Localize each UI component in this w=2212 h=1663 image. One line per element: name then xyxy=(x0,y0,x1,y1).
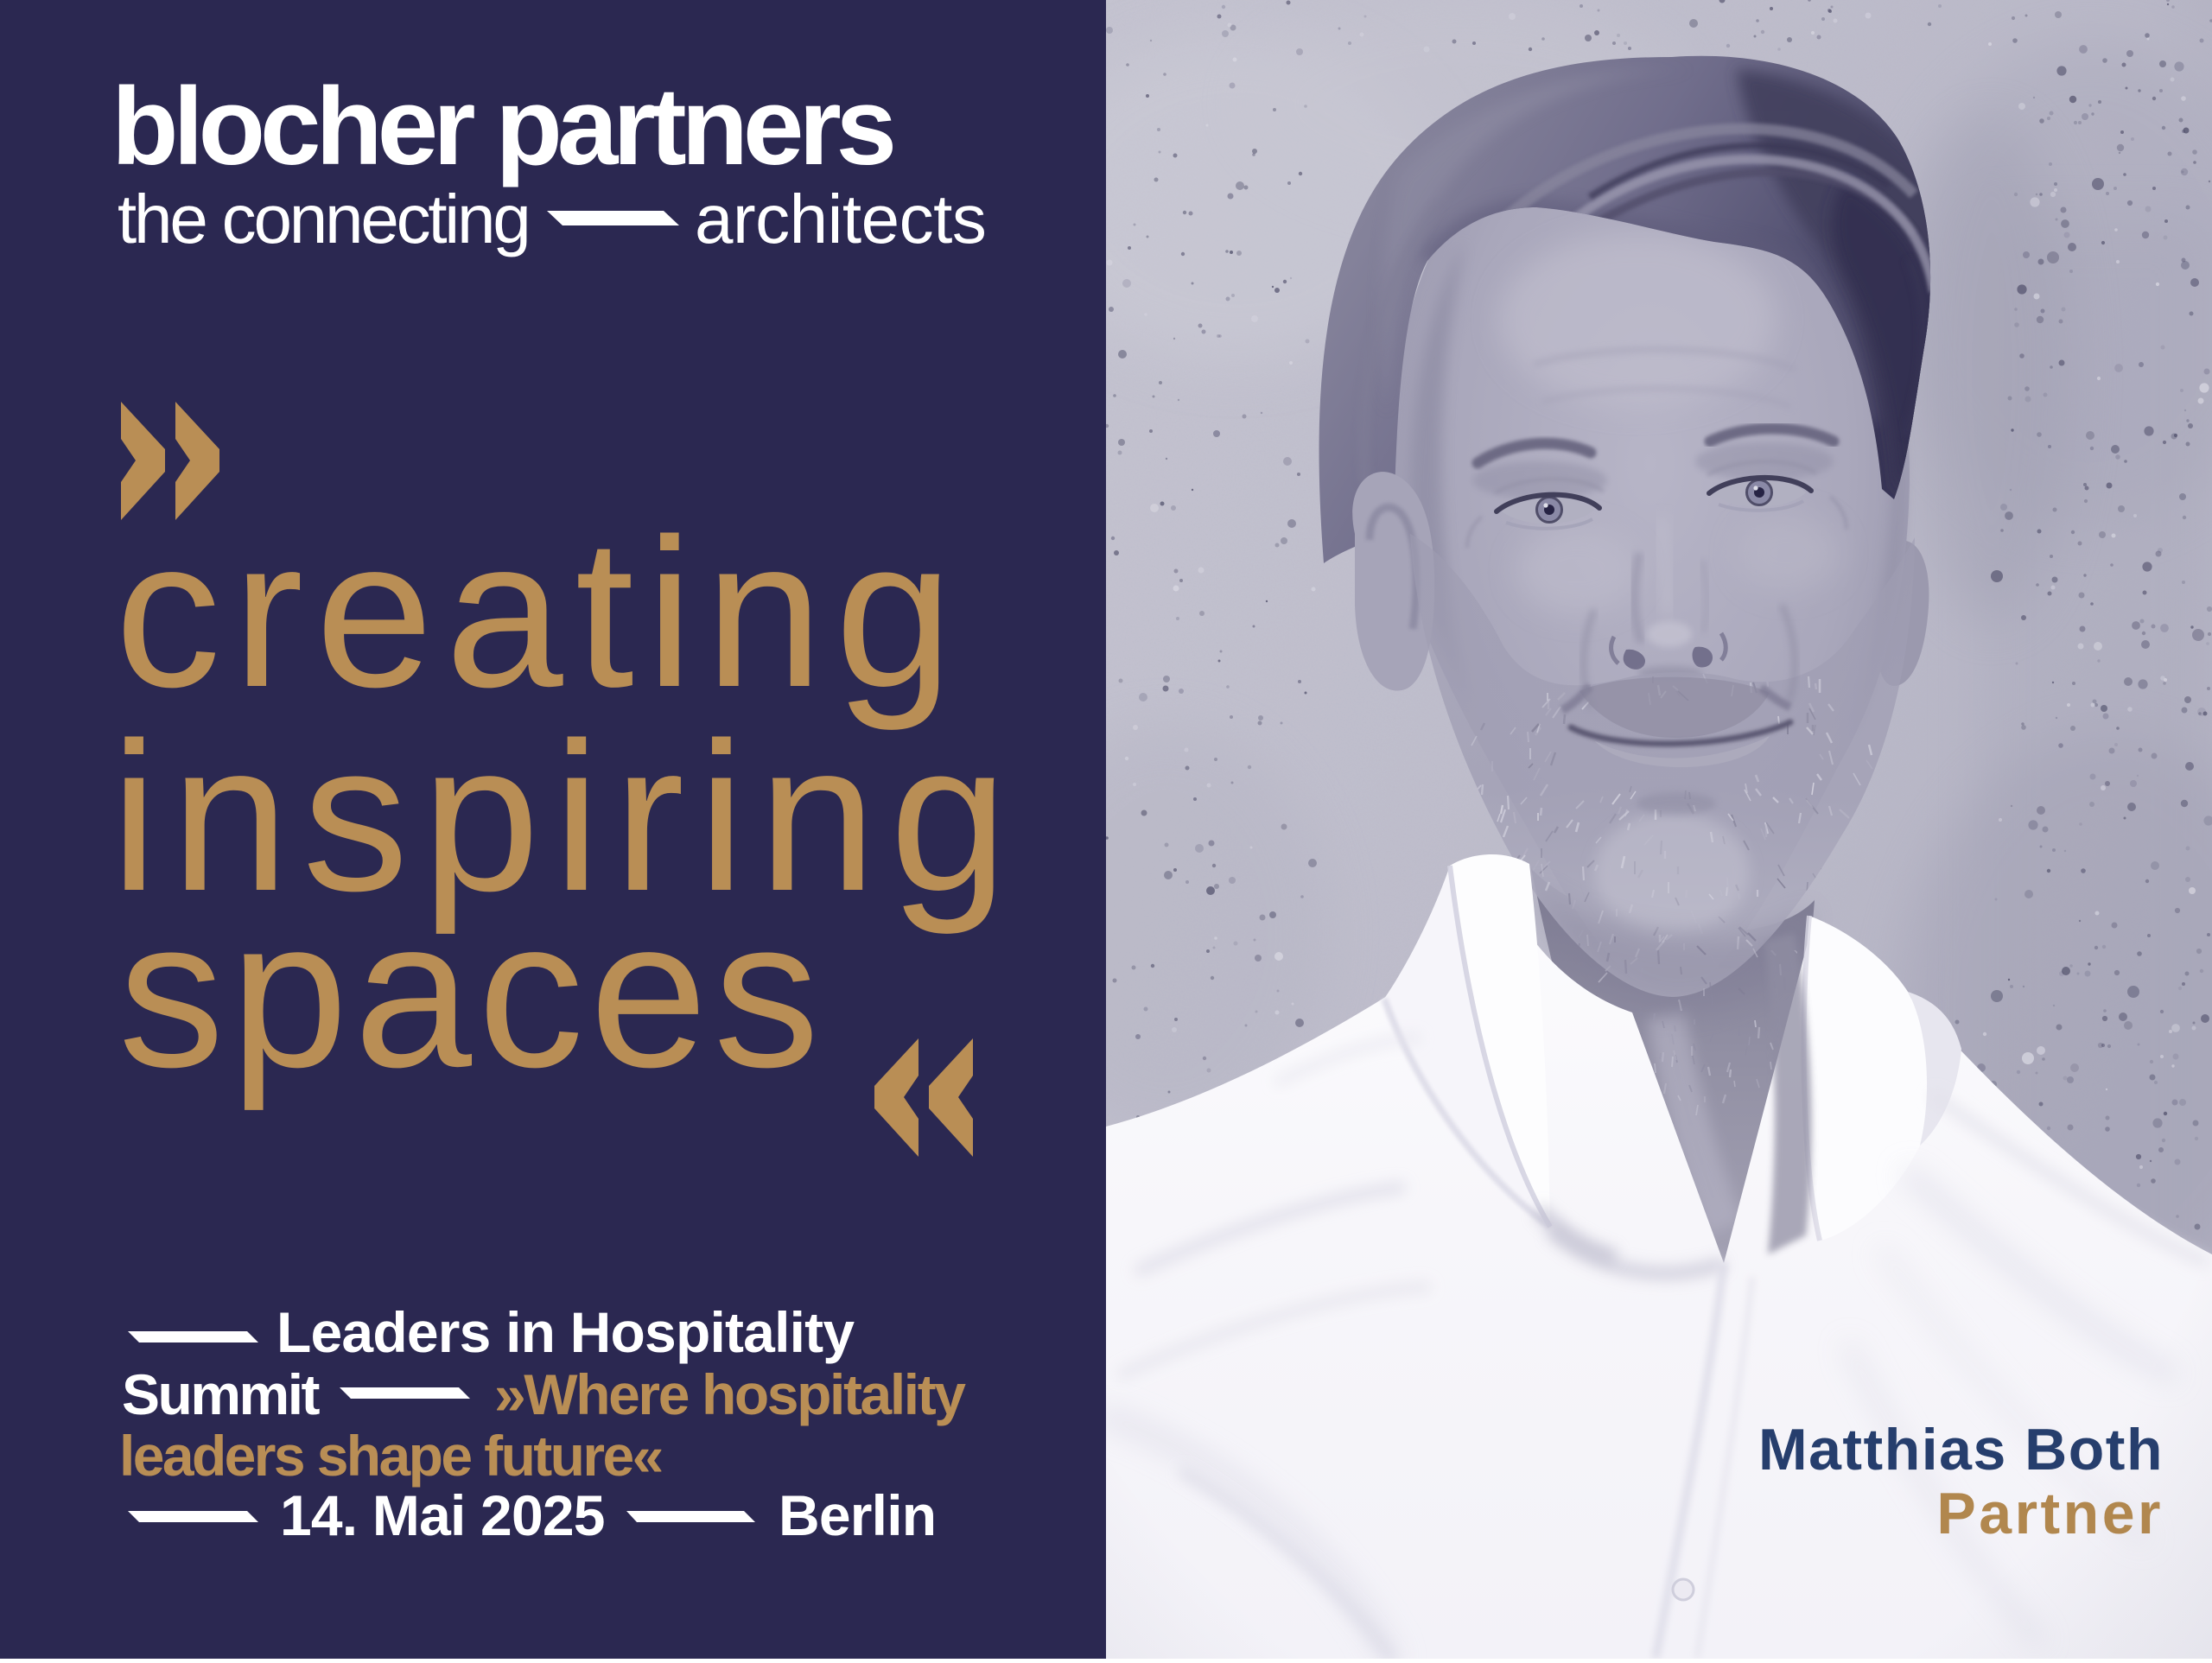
svg-text:blocher partners: blocher partners xyxy=(111,65,893,187)
svg-text:creating: creating xyxy=(115,494,965,731)
svg-text:Berlin: Berlin xyxy=(779,1483,936,1547)
svg-text:»Where hospitality: »Where hospitality xyxy=(494,1362,966,1426)
svg-text:Summit: Summit xyxy=(122,1362,321,1426)
svg-text:architects: architects xyxy=(695,181,986,257)
svg-text:Matthias Both: Matthias Both xyxy=(1758,1417,2164,1482)
svg-text:14. Mai 2025: 14. Mai 2025 xyxy=(280,1483,605,1547)
svg-text:Partner: Partner xyxy=(1936,1481,2164,1546)
svg-text:leaders shape future«: leaders shape future« xyxy=(119,1424,662,1488)
svg-text:spaces: spaces xyxy=(118,874,825,1111)
svg-text:the connecting: the connecting xyxy=(118,181,529,257)
svg-text:Leaders in Hospitality: Leaders in Hospitality xyxy=(276,1300,855,1364)
